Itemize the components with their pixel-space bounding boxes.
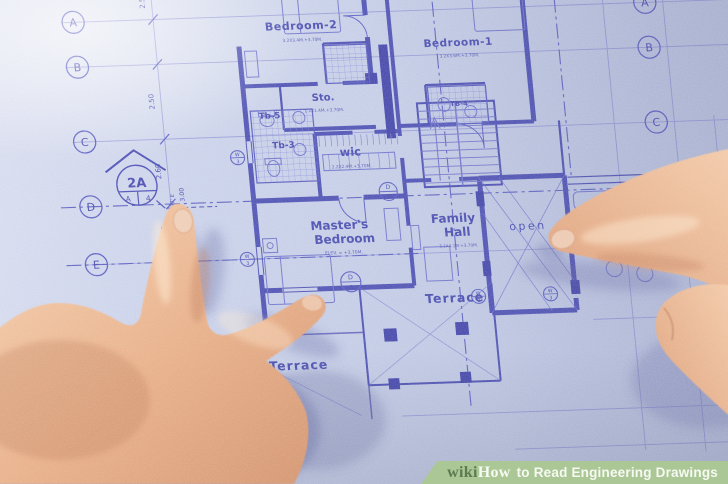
wikihow-logo-how: How xyxy=(478,464,511,482)
wikihow-banner: wikiHow to Read Engineering Drawings xyxy=(421,461,728,484)
photo-of-blueprint-with-hands: A B C D E A B C 2.50 2.50 2.60 4.25 5.60… xyxy=(0,0,728,484)
left-hand xyxy=(0,204,326,484)
hands-layer xyxy=(0,0,728,484)
wikihow-logo-wiki: wiki xyxy=(447,464,478,482)
banner-tagline: to Read Engineering Drawings xyxy=(517,465,718,480)
